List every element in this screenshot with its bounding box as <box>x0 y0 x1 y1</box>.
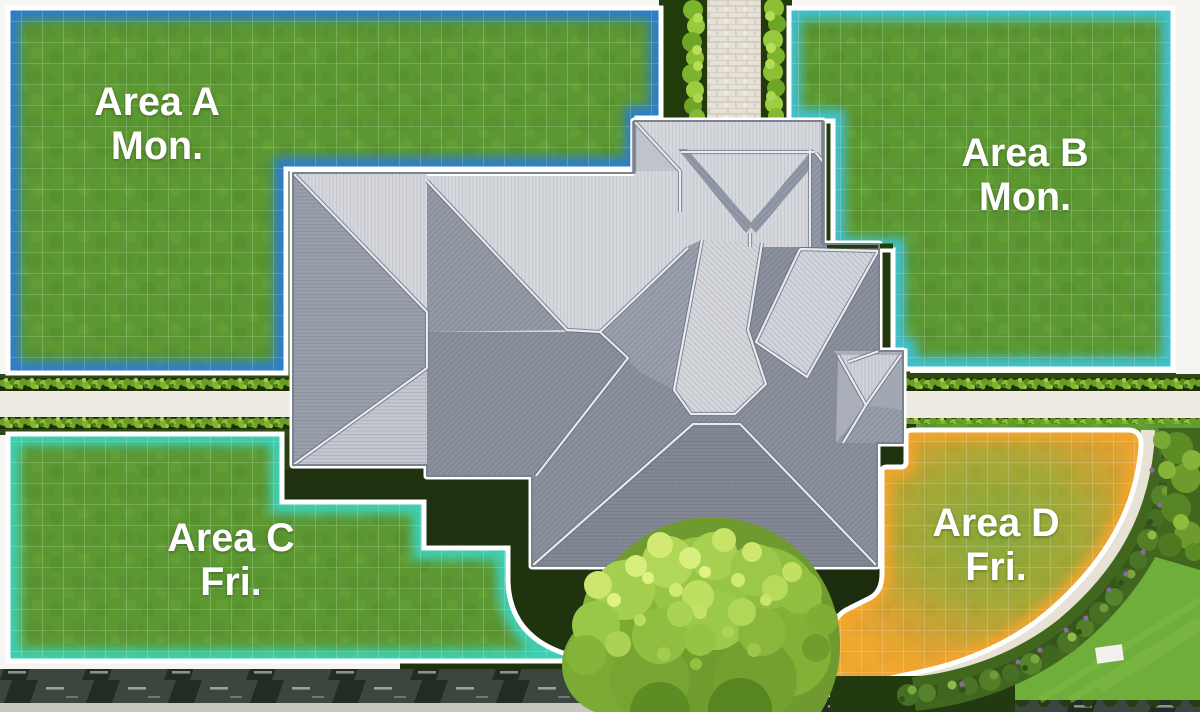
svg-text:Area D: Area D <box>932 501 1059 545</box>
svg-text:Mon.: Mon. <box>979 175 1071 219</box>
svg-text:Area A: Area A <box>94 80 220 124</box>
svg-text:Mon.: Mon. <box>111 124 203 168</box>
svg-text:Fri.: Fri. <box>965 545 1026 589</box>
svg-text:Area B: Area B <box>961 131 1088 175</box>
svg-text:Fri.: Fri. <box>200 560 261 604</box>
svg-text:Area C: Area C <box>167 516 294 560</box>
